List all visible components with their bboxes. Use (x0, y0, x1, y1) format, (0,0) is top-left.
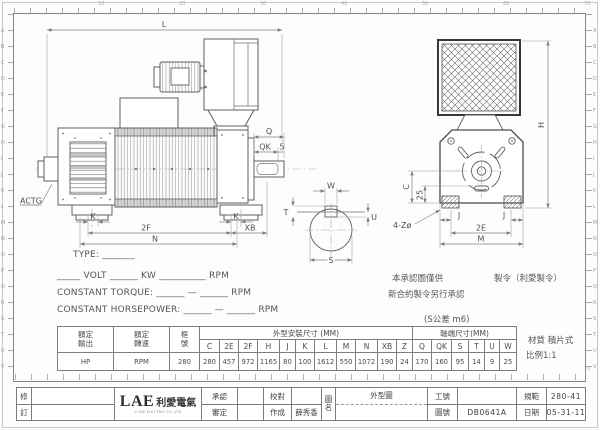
ruler-letters-right: ABCDEFGHIJKLMNOPQRSTUV (593, 6, 600, 426)
ruler-letter: O (1, 252, 5, 258)
checked-value (291, 388, 321, 404)
rating-line: _____ VOLT ______ KW __________ RPM (57, 271, 229, 281)
date-label: 日期 (516, 404, 546, 420)
ruler-letter: E (1, 92, 4, 98)
dwg-no-value: DB0641A (457, 404, 516, 420)
note-mfg-order: 製令（利愛製令） (494, 272, 562, 284)
dimension-table: 額定輸出 額定轉速 框號 外型安裝尺寸 (MM) 軸端尺寸(MM) C2E 2F… (57, 326, 517, 371)
ruler-letter: H (1, 140, 5, 146)
spec-label: 規範 (516, 388, 546, 404)
ruler-letter: N (1, 236, 5, 242)
ruler-numbers-top: 10203040506070 (14, 1, 586, 8)
ruler-letter: L (593, 204, 596, 210)
title-block: 修 LAE 利愛電氣 LI AIE ELECTRIC CO.,LTD 承認 校對… (16, 387, 586, 421)
dim-label-k-right: K (233, 212, 239, 221)
ruler-letter: O (593, 252, 597, 258)
revision-blank-top (31, 388, 114, 404)
col-rated-speed: 額定轉速 (114, 327, 170, 353)
reviewed-value (237, 404, 263, 420)
ruler-number: 30 (260, 1, 266, 7)
drawing-name-label: 圖名 (321, 388, 335, 420)
dim-label-w: W (327, 182, 335, 191)
tachometer: ACTG (20, 157, 58, 206)
ruler-letter: M (1, 220, 5, 226)
dim-label-q: Q (266, 127, 272, 136)
blower-duct (204, 39, 258, 136)
ruler-letter: R (593, 300, 596, 306)
dim-label-u: U (371, 213, 377, 222)
approved-value (237, 388, 263, 404)
dim-label-25: 25 (416, 190, 425, 200)
ruler-letter: U (1, 348, 5, 354)
note-tolerance: (S公差 m6) (424, 313, 469, 325)
note-approval: 本承認圖僅供 (392, 272, 443, 284)
drawing-sheet: 10203040506070 10203040506070 ABCDEFGHIJ… (0, 0, 600, 430)
work-no-label: 工號 (427, 388, 457, 404)
dim-label-h: H (537, 122, 546, 128)
scale-note: 比例1:1 (526, 349, 557, 361)
revision-blank-bottom (31, 404, 114, 420)
type-line: TYPE: _______ (73, 250, 135, 260)
dim-label-2f: 2F (141, 224, 151, 233)
spec-value: 280-41 (546, 388, 585, 404)
drawn-label: 作成 (263, 404, 291, 420)
ruler-letter: E (593, 92, 596, 98)
work-no-value (457, 388, 516, 404)
dim-label-n: N (152, 235, 158, 244)
ruler-letter: F (593, 108, 596, 114)
approved-label: 承認 (201, 388, 237, 404)
ruler-letter: K (1, 188, 4, 194)
ruler-letter: T (593, 332, 596, 338)
dim-label-l: L (162, 20, 167, 29)
horsepower-line: CONSTANT HORSEPOWER: ______ — ______ RPM (57, 305, 278, 315)
torque-line: CONSTANT TORQUE: ______ — ______ RPM (57, 288, 251, 298)
shaft-section-view: W T U S (283, 182, 378, 266)
actg-label: ACTG (20, 197, 42, 206)
dim-label-qk: QK (259, 143, 271, 152)
drawn-by-value: 薛秀香 (291, 404, 321, 420)
ruler-letter: I (593, 156, 594, 162)
ruler-letter: J (593, 172, 594, 178)
ruler-letter: N (593, 236, 597, 242)
dim-label-j-right: J (502, 211, 505, 220)
dim-label-5: 5 (279, 143, 284, 152)
ruler-number: 20 (179, 1, 185, 7)
ruler-letter: P (1, 268, 4, 274)
ruler-letter: V (1, 364, 4, 370)
ruler-letter: D (593, 76, 597, 82)
drawing-name: 外型圖 (336, 388, 427, 404)
dim-label-2e: 2E (476, 224, 486, 233)
ruler-letter: G (593, 124, 597, 130)
checked-label: 校對 (263, 388, 291, 404)
holes-label: 4-Zø (393, 221, 411, 230)
technical-drawing-canvas: L (14, 14, 586, 280)
ruler-letter: S (593, 316, 596, 322)
ruler-letter: A (593, 28, 596, 34)
date-value: 05-31-11 (546, 404, 585, 420)
logo-chinese-name: 利愛電氣 (156, 399, 196, 409)
material-note: 材質 積片式 (528, 334, 573, 346)
ruler-letter: Q (593, 284, 597, 290)
ruler-letter: S (1, 316, 4, 322)
table-value-row: HP RPM 280 280457 9721165 80100 1612550 … (58, 353, 517, 371)
col-rated-output: 額定輸出 (58, 327, 114, 353)
ruler-letter: B (593, 44, 596, 50)
ruler-letter: C (593, 60, 597, 66)
end-view: H C 25 J J 2E M 4-Zø (393, 40, 551, 248)
reviewed-label: 審定 (201, 404, 237, 420)
dim-label-k-left: K (90, 212, 96, 221)
ruler-number: 50 (422, 1, 428, 7)
ruler-letter: J (1, 172, 2, 178)
ruler-letter: K (593, 188, 596, 194)
ruler-letter: U (593, 348, 597, 354)
ruler-letter: V (593, 364, 596, 370)
ruler-letter: H (593, 140, 597, 146)
company-logo: LAE 利愛電氣 LI AIE ELECTRIC CO.,LTD (114, 388, 201, 420)
ruler-letter: M (593, 220, 597, 226)
blower-fan-motor (154, 62, 207, 92)
dim-label-m: M (478, 235, 485, 244)
revision-label-top: 修 (17, 388, 31, 404)
dim-label-t: T (283, 208, 289, 217)
col-frame-no: 框號 (170, 327, 200, 353)
ruler-letter: B (1, 44, 4, 50)
ruler-letter: D (1, 76, 5, 82)
logo-subtitle: LI AIE ELECTRIC CO.,LTD (120, 411, 196, 415)
ruler-ticks-right (586, 14, 592, 380)
outline-dims-header: 外型安裝尺寸 (MM) (200, 327, 413, 340)
ruler-letter: L (1, 204, 4, 210)
shaft-dims-header: 軸端尺寸(MM) (413, 327, 517, 340)
ruler-letter: Q (1, 284, 5, 290)
ruler-letter: T (1, 332, 4, 338)
ruler-letter: F (1, 108, 4, 114)
ruler-letter: C (1, 60, 5, 66)
dim-label-xb: XB (245, 224, 256, 233)
ruler-letter: A (1, 28, 4, 34)
side-view: L (20, 20, 316, 248)
drawing-name-blank (336, 405, 427, 421)
dwg-no-label: 圖號 (427, 404, 457, 420)
ruler-letter: I (1, 156, 2, 162)
ruler-letters-left: ABCDEFGHIJKLMNOPQRSTUV (1, 6, 8, 426)
ruler-letter: G (1, 124, 5, 130)
dim-label-c: C (402, 184, 411, 190)
drawing-name-cell: 外型圖 (335, 388, 427, 420)
ruler-number: 60 (503, 1, 509, 7)
ruler-number: 40 (341, 1, 347, 7)
revision-label-bottom: 訂 (17, 404, 31, 420)
ruler-letter: R (1, 300, 4, 306)
note-new-contract: 新合約製令另行承認 (388, 288, 465, 300)
ruler-number: 70 (584, 1, 590, 7)
dim-label-j-left: J (457, 211, 460, 220)
ruler-letter: P (593, 268, 596, 274)
ruler-number: 10 (98, 1, 104, 7)
logo-lae-text: LAE (120, 394, 154, 410)
